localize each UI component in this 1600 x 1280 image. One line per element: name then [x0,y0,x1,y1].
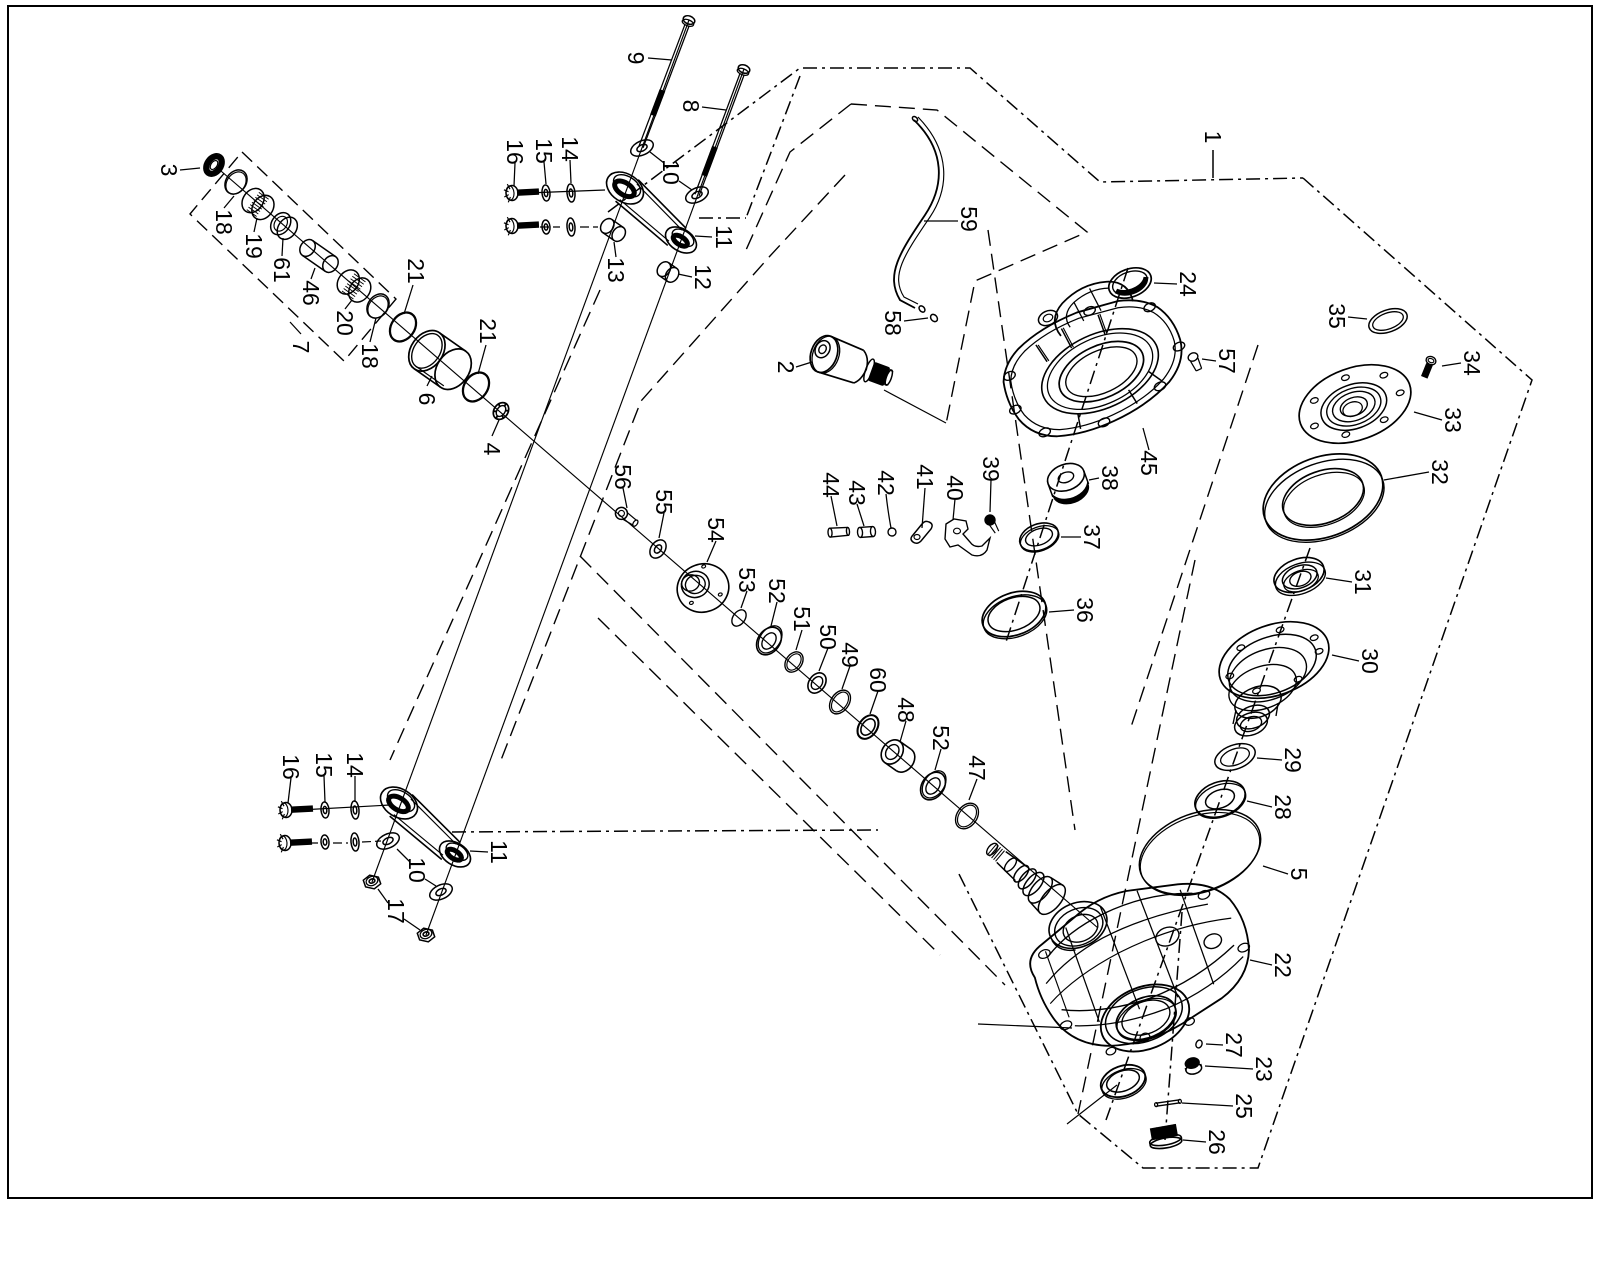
svg-text:11: 11 [486,840,512,864]
svg-text:44: 44 [818,472,844,498]
svg-text:40: 40 [942,475,968,501]
svg-text:57: 57 [1214,348,1240,374]
svg-text:21: 21 [403,258,429,284]
svg-text:13: 13 [603,257,629,283]
svg-text:26: 26 [1204,1129,1230,1155]
svg-text:55: 55 [651,489,677,515]
svg-text:27: 27 [1221,1032,1247,1058]
svg-text:45: 45 [1136,450,1162,476]
svg-text:52: 52 [764,578,790,604]
svg-text:61: 61 [269,257,295,283]
svg-text:28: 28 [1270,794,1296,820]
svg-text:7: 7 [288,341,314,354]
svg-text:56: 56 [610,464,636,490]
svg-text:1: 1 [1200,131,1226,144]
svg-text:42: 42 [873,470,899,496]
svg-text:58: 58 [880,310,906,336]
svg-text:19: 19 [241,233,267,259]
svg-text:3: 3 [156,164,182,177]
svg-text:60: 60 [865,667,891,693]
svg-text:59: 59 [956,206,982,232]
svg-text:20: 20 [332,310,358,336]
svg-text:38: 38 [1097,465,1123,491]
svg-text:2: 2 [773,361,799,374]
svg-text:43: 43 [844,480,870,506]
svg-text:31: 31 [1350,569,1376,595]
svg-text:23: 23 [1251,1056,1277,1082]
svg-text:5: 5 [1286,868,1312,881]
svg-text:33: 33 [1440,407,1466,433]
svg-text:41: 41 [912,464,938,490]
svg-text:24: 24 [1175,271,1201,297]
svg-text:39: 39 [978,456,1004,482]
svg-text:18: 18 [357,343,383,369]
svg-text:15: 15 [531,138,557,164]
svg-text:54: 54 [703,517,729,543]
svg-text:22: 22 [1270,952,1296,978]
svg-text:15: 15 [311,752,337,778]
svg-text:18: 18 [211,209,237,235]
svg-text:51: 51 [789,606,815,632]
svg-text:32: 32 [1427,459,1453,485]
svg-text:10: 10 [658,159,684,185]
svg-text:21: 21 [475,318,501,344]
svg-text:34: 34 [1459,350,1485,376]
svg-text:16: 16 [502,139,528,165]
svg-text:35: 35 [1324,303,1350,329]
svg-text:6: 6 [414,393,440,406]
svg-text:30: 30 [1357,648,1383,674]
svg-text:46: 46 [298,280,324,306]
svg-text:8: 8 [678,100,704,113]
svg-text:11: 11 [711,225,737,249]
svg-text:9: 9 [623,52,649,65]
svg-text:53: 53 [734,567,760,593]
svg-text:52: 52 [928,725,954,751]
svg-text:47: 47 [964,755,990,781]
svg-text:29: 29 [1280,747,1306,773]
svg-text:14: 14 [557,136,583,162]
svg-text:48: 48 [893,697,919,723]
svg-text:4: 4 [479,443,505,456]
svg-text:12: 12 [690,264,716,290]
svg-text:25: 25 [1231,1093,1257,1119]
svg-text:36: 36 [1072,597,1098,623]
svg-text:49: 49 [837,642,863,668]
svg-text:37: 37 [1079,524,1105,550]
svg-text:14: 14 [342,752,368,778]
svg-text:16: 16 [278,754,304,780]
